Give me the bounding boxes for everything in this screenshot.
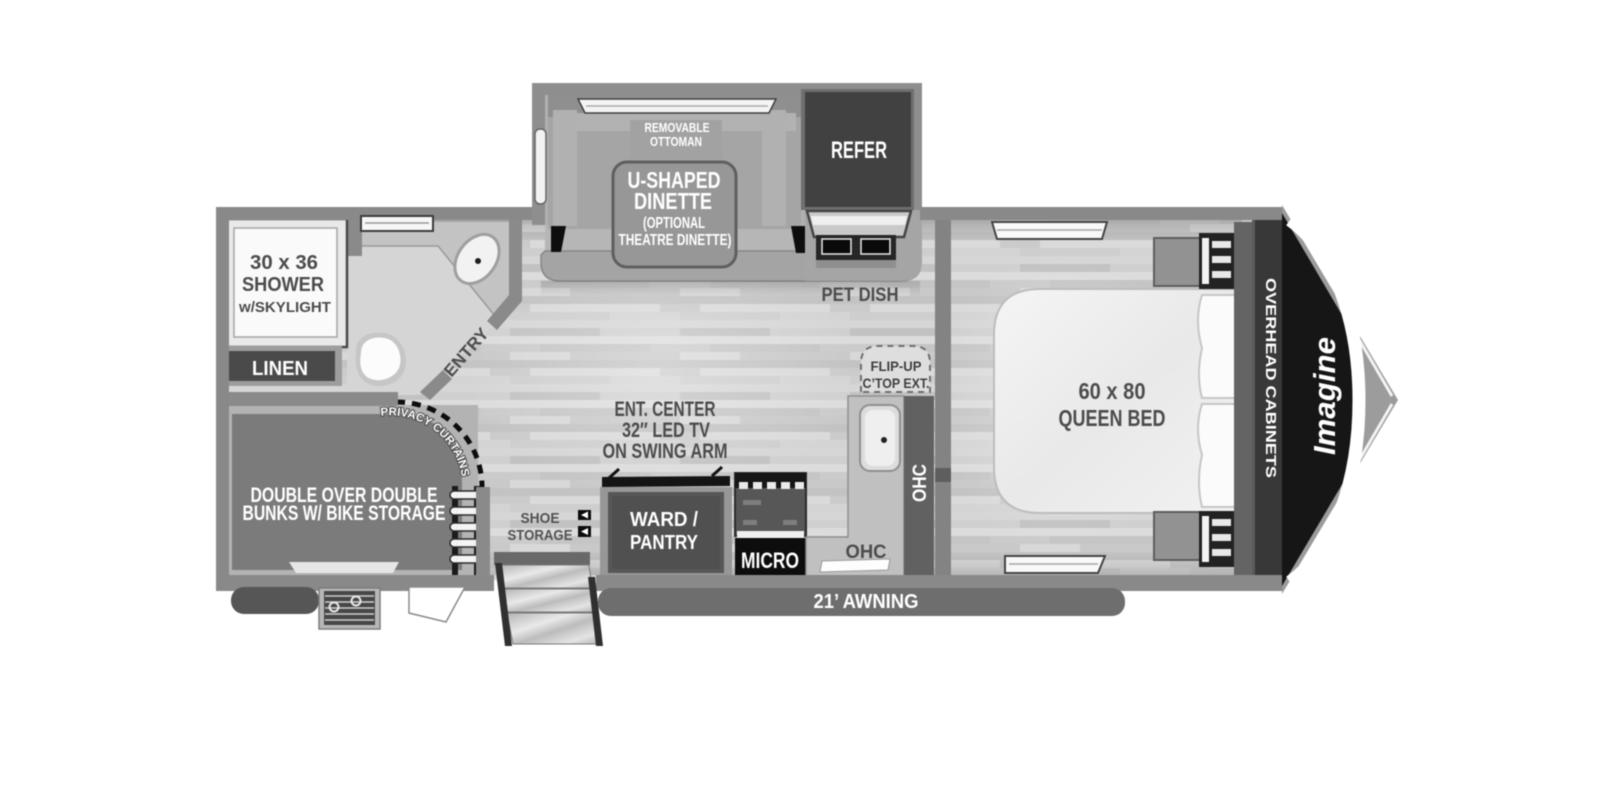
- svg-text:OHC: OHC: [910, 464, 931, 502]
- svg-text:BUNKS W/ BIKE STORAGE: BUNKS W/ BIKE STORAGE: [243, 502, 446, 525]
- svg-text:LINEN: LINEN: [252, 358, 308, 380]
- svg-text:PET DISH: PET DISH: [822, 285, 899, 306]
- svg-text:21’ AWNING: 21’ AWNING: [814, 591, 919, 613]
- svg-text:30 x 36: 30 x 36: [250, 252, 318, 274]
- svg-text:REMOVABLE: REMOVABLE: [645, 120, 710, 135]
- svg-text:PANTRY: PANTRY: [630, 532, 699, 554]
- svg-text:ENT. CENTER: ENT. CENTER: [615, 398, 716, 421]
- svg-text:SHOE: SHOE: [521, 510, 560, 527]
- svg-text:C’TOP EXT.: C’TOP EXT.: [863, 375, 930, 391]
- svg-text:MICRO: MICRO: [741, 548, 799, 573]
- svg-text:ON SWING ARM: ON SWING ARM: [603, 440, 728, 463]
- svg-text:Imagine: Imagine: [1307, 337, 1342, 455]
- svg-text:(OPTIONAL: (OPTIONAL: [643, 215, 705, 232]
- svg-text:OVERHEAD CABINETS: OVERHEAD CABINETS: [1262, 278, 1279, 478]
- svg-text:w/SKYLIGHT: w/SKYLIGHT: [238, 299, 331, 316]
- svg-text:60 x 80: 60 x 80: [1079, 378, 1146, 404]
- svg-text:32″ LED TV: 32″ LED TV: [622, 419, 710, 442]
- svg-text:REFER: REFER: [831, 137, 887, 164]
- svg-text:THEATRE DINETTE): THEATRE DINETTE): [619, 232, 732, 249]
- svg-text:OTTOMAN: OTTOMAN: [650, 134, 702, 149]
- svg-text:SHOWER: SHOWER: [242, 274, 325, 296]
- svg-text:WARD /: WARD /: [630, 509, 698, 531]
- svg-text:DINETTE: DINETTE: [634, 188, 712, 214]
- svg-text:FLIP-UP: FLIP-UP: [871, 358, 922, 374]
- svg-text:STORAGE: STORAGE: [508, 527, 573, 544]
- svg-text:QUEEN BED: QUEEN BED: [1059, 405, 1166, 431]
